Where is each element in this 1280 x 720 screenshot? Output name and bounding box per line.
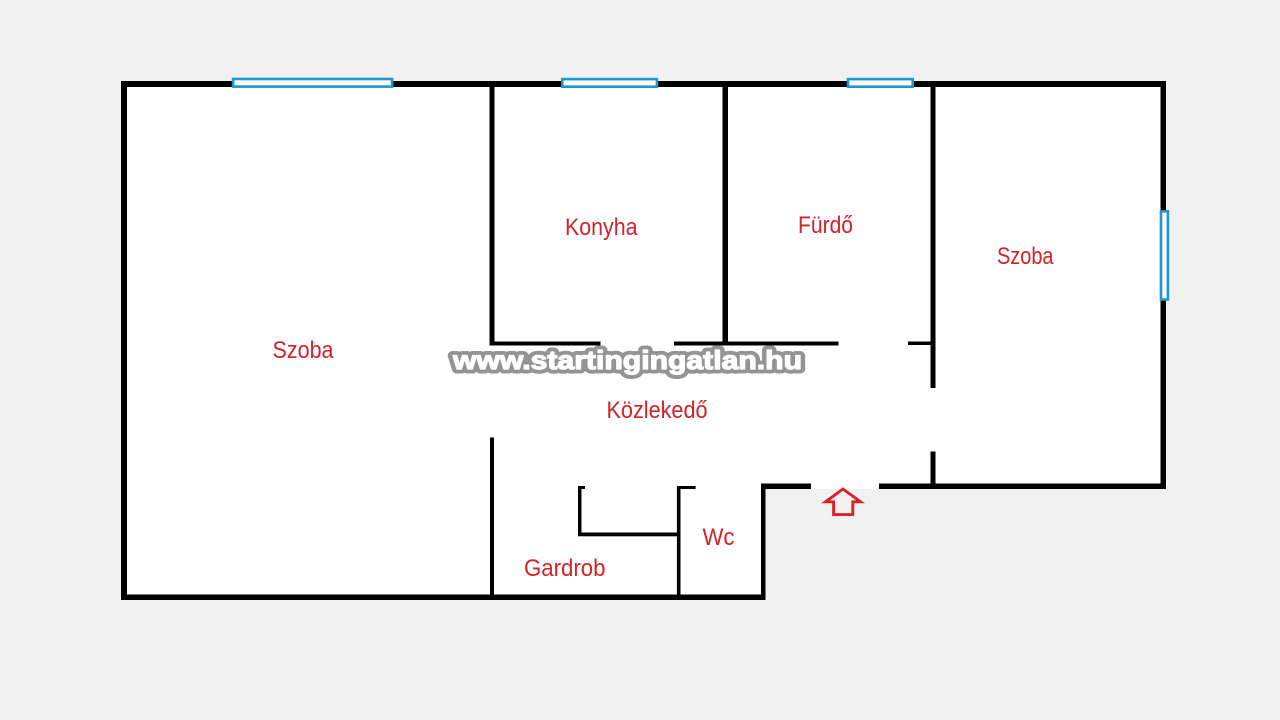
svg-text:Szoba: Szoba (273, 337, 335, 364)
svg-text:Gardrob: Gardrob (524, 555, 606, 582)
svg-text:Fürdő: Fürdő (798, 212, 853, 239)
svg-text:Közlekedő: Közlekedő (607, 397, 708, 424)
svg-text:Wc: Wc (703, 524, 735, 551)
svg-text:www.startingingatlan.hu: www.startingingatlan.hu (452, 345, 802, 375)
svg-text:Konyha: Konyha (565, 214, 638, 241)
svg-text:Szoba: Szoba (997, 243, 1054, 270)
